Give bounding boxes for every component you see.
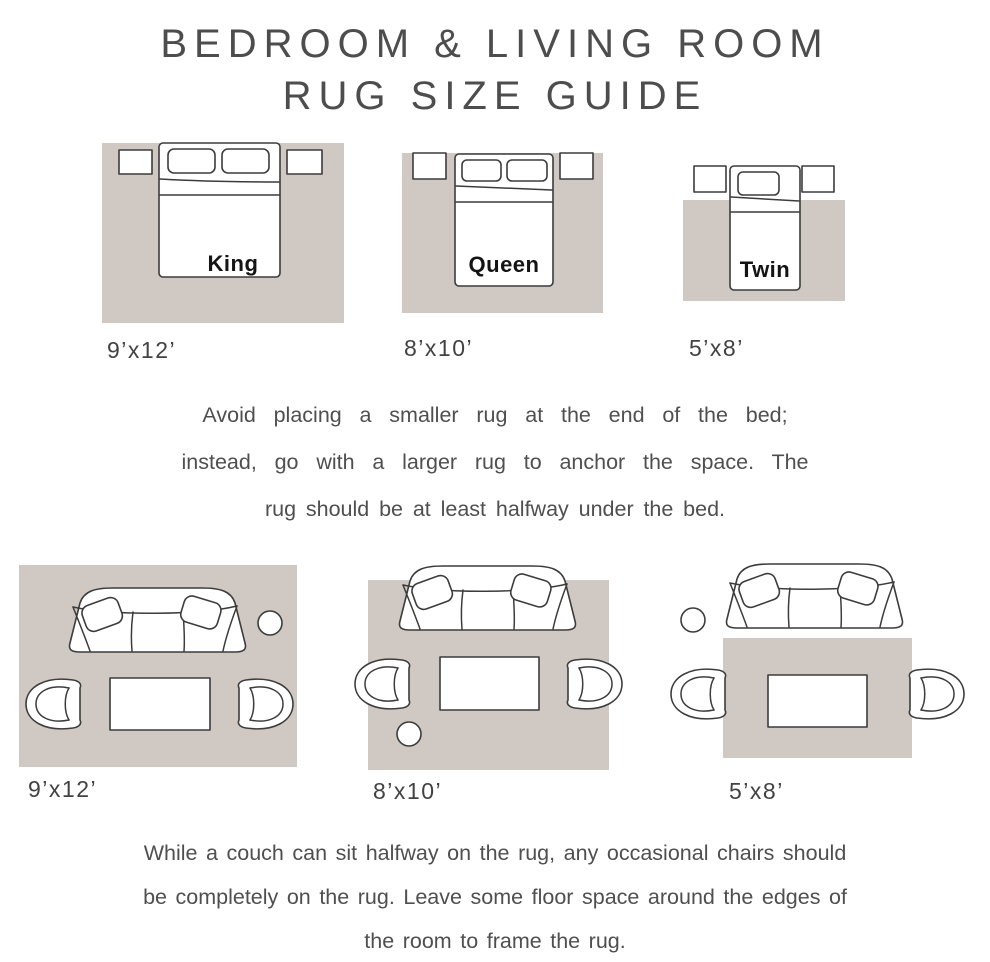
coffee-table-icon <box>768 675 867 727</box>
armchair-icon <box>671 669 726 719</box>
pillow-icon <box>222 149 269 173</box>
twin-bed-label: Twin <box>740 257 790 282</box>
living-room-note: While a couch can sit halfway on the rug… <box>60 831 930 962</box>
pillow-icon <box>168 149 215 173</box>
pillow-icon <box>507 160 547 181</box>
nightstand-icon <box>560 153 593 179</box>
sofa-icon <box>69 588 245 652</box>
nightstand-icon <box>119 150 152 174</box>
living-room-diagram-5x8 <box>655 555 985 770</box>
living-room-rug-size-8x10: 8’x10’ <box>373 778 442 805</box>
king-bed-label: King <box>208 251 259 276</box>
living-room-rug-size-9x12: 9’x12’ <box>28 776 97 803</box>
sofa-icon <box>399 566 575 630</box>
side-table-icon <box>258 611 282 635</box>
bedroom-note: Avoid placing a smaller rug at the end o… <box>135 392 855 533</box>
living-room-rug-size-5x8: 5’x8’ <box>729 778 784 805</box>
nightstand-icon <box>287 150 322 174</box>
armchair-icon <box>26 679 81 729</box>
nightstand-icon <box>802 166 834 192</box>
bedroom-rug-size-twin: 5’x8’ <box>689 335 744 362</box>
coffee-table-icon <box>110 678 210 730</box>
bedroom-diagram-queen: Queen <box>400 150 606 318</box>
side-table-icon <box>397 722 421 746</box>
bedroom-diagram-twin: Twin <box>683 162 845 304</box>
armchair-icon <box>355 659 410 709</box>
armchair-icon <box>238 679 293 729</box>
bedroom-rug-size-king: 9’x12’ <box>107 337 176 364</box>
page-title-line-2: RUG SIZE GUIDE <box>0 74 990 119</box>
living-room-note-line: the room to frame the rug. <box>60 919 930 962</box>
nightstand-icon <box>694 166 726 192</box>
bedroom-note-line: Avoid placing a smaller rug at the end o… <box>135 392 855 439</box>
living-room-note-line: While a couch can sit halfway on the rug… <box>60 831 930 875</box>
nightstand-icon <box>413 153 446 179</box>
living-room-diagram-8x10 <box>345 555 637 773</box>
pillow-icon <box>462 160 501 181</box>
living-room-note-line: be completely on the rug. Leave some flo… <box>60 875 930 919</box>
page-title-line-1: BEDROOM & LIVING ROOM <box>0 22 990 67</box>
armchair-icon <box>567 659 622 709</box>
bedroom-rug-size-queen: 8’x10’ <box>404 335 473 362</box>
bedroom-note-line: rug should be at least halfway under the… <box>135 486 855 533</box>
bedroom-diagram-king: King <box>95 140 347 328</box>
coffee-table-icon <box>440 657 539 710</box>
bedroom-note-line: instead, go with a larger rug to anchor … <box>135 439 855 486</box>
living-room-diagram-9x12 <box>15 560 307 772</box>
armchair-icon <box>909 669 964 719</box>
rug-size-guide-page: BEDROOM & LIVING ROOM RUG SIZE GUIDE Kin… <box>0 0 990 962</box>
sofa-icon <box>726 564 902 628</box>
side-table-icon <box>681 608 705 632</box>
queen-bed-label: Queen <box>469 252 540 277</box>
pillow-icon <box>738 172 779 195</box>
